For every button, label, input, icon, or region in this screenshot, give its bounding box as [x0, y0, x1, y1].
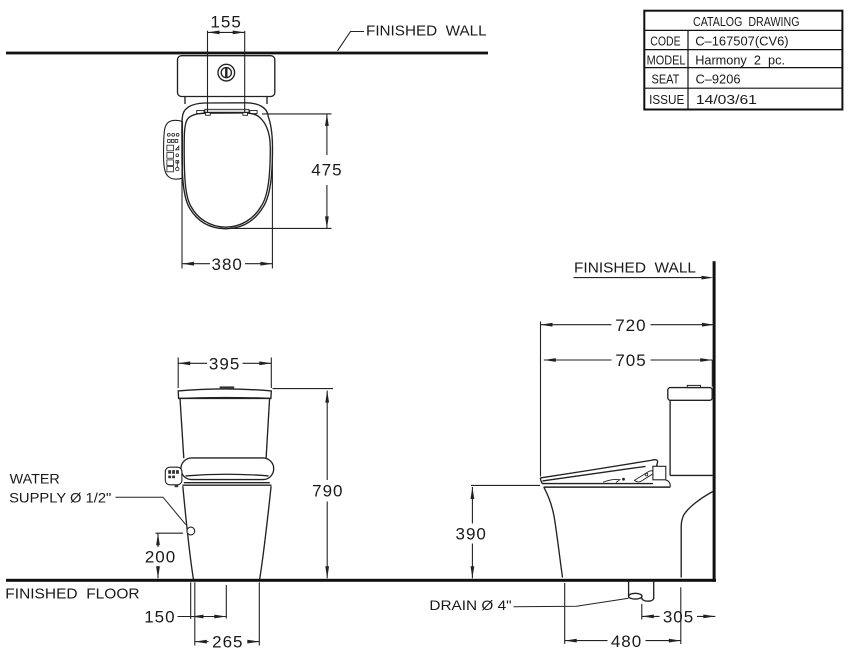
svg-text:FINISHED FLOOR: FINISHED FLOOR: [5, 586, 139, 603]
svg-text:475: 475: [311, 161, 342, 180]
svg-text:DRAIN Ø 4": DRAIN Ø 4": [429, 597, 511, 613]
svg-text:155: 155: [210, 13, 241, 32]
svg-text:790: 790: [312, 482, 343, 501]
svg-text:265: 265: [212, 633, 243, 648]
svg-text:720: 720: [615, 316, 646, 335]
svg-text:C–167507(CV6): C–167507(CV6): [695, 33, 788, 48]
svg-text:CODE: CODE: [650, 33, 681, 48]
svg-text:200: 200: [145, 548, 176, 567]
svg-text:WATER: WATER: [10, 471, 60, 487]
svg-text:150: 150: [144, 608, 175, 627]
svg-text:CATALOG DRAWING: CATALOG DRAWING: [693, 14, 800, 29]
svg-text:705: 705: [615, 351, 646, 370]
svg-text:14/03/61: 14/03/61: [696, 92, 757, 107]
svg-text:305: 305: [663, 608, 694, 627]
svg-text:Harmony 2 pc.: Harmony 2 pc.: [695, 53, 785, 68]
svg-text:SUPPLY Ø 1/2": SUPPLY Ø 1/2": [9, 489, 111, 505]
svg-text:FINISHED WALL: FINISHED WALL: [574, 259, 696, 276]
svg-text:SEAT: SEAT: [652, 71, 680, 86]
svg-text:395: 395: [209, 355, 240, 374]
svg-text:FINISHED WALL: FINISHED WALL: [366, 23, 487, 40]
svg-text:C–9206: C–9206: [696, 71, 741, 86]
svg-text:ISSUE: ISSUE: [649, 92, 684, 107]
svg-text:380: 380: [212, 255, 243, 274]
svg-text:390: 390: [456, 524, 487, 543]
svg-text:480: 480: [611, 632, 642, 648]
svg-text:MODEL: MODEL: [647, 53, 686, 68]
